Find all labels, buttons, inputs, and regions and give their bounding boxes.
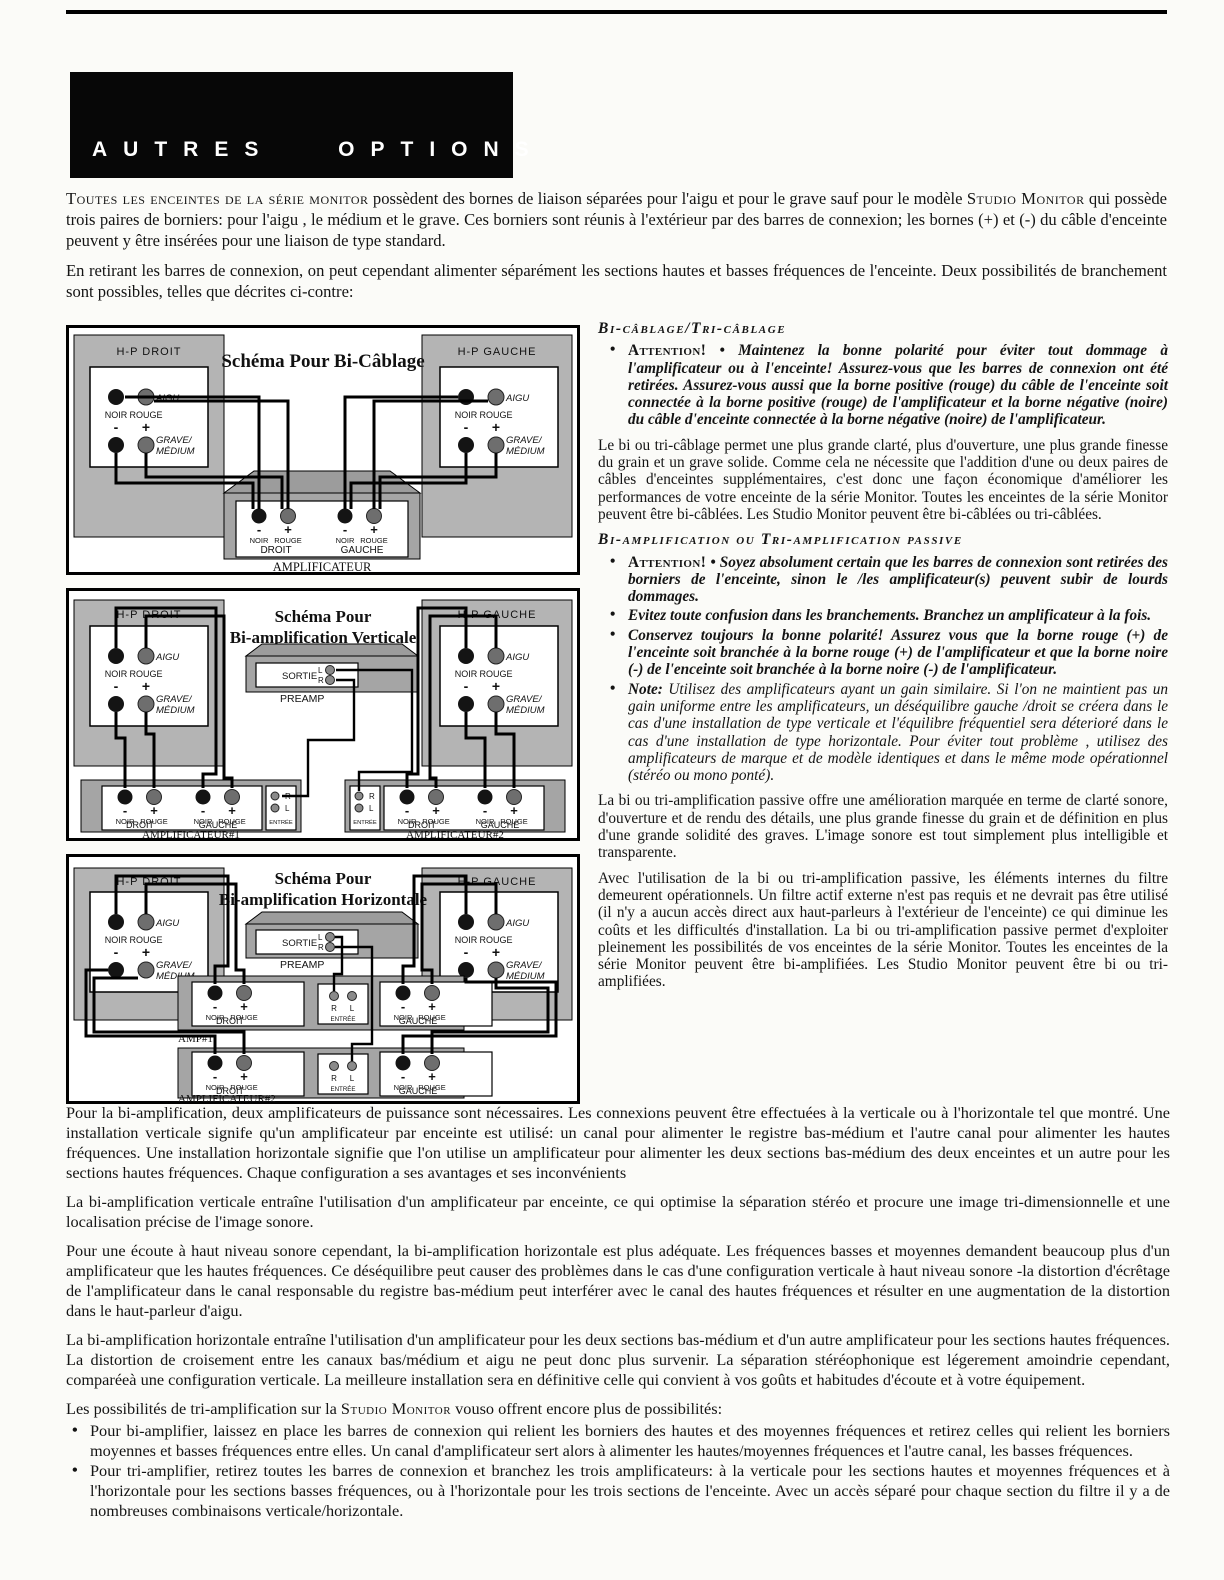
warning-list: • Attention! • Maintenez la bonne polari… — [598, 342, 1168, 428]
section-banner: AUTRES OPTIONS — [70, 72, 513, 178]
bottom-section: Pour la bi-amplification, deux amplifica… — [66, 1103, 1170, 1521]
bullet-icon: • — [610, 680, 615, 697]
gauche-label: GAUCHE — [341, 545, 384, 556]
amplificateur2-label: AMPLIFICATEUR#2 — [406, 829, 504, 841]
bullet-separator: • — [706, 342, 738, 359]
body-paragraph: La bi-amplification horizontale entraîne… — [66, 1330, 1170, 1390]
bullet-icon: • — [72, 1420, 78, 1440]
l-label: L — [350, 1074, 355, 1083]
amp2-input-jack-l — [348, 1062, 357, 1071]
attention-label: Attention! — [628, 342, 706, 359]
sortie-label: SORTIE — [282, 938, 317, 949]
entree-label: ENTRÉE — [330, 1016, 355, 1023]
body-paragraph: Avec l'utilisation de la bi ou tri-ampli… — [598, 870, 1168, 991]
droit-label: DROIT — [260, 545, 291, 556]
list-item: • Pour tri-amplifier, retirez toutes les… — [66, 1461, 1170, 1521]
list-item: • Attention! • Soyez absolument certain … — [598, 554, 1168, 606]
tri-amp-intro: Les possibilités de tri-amplification su… — [66, 1399, 1170, 1419]
amp2-input-jack-r — [330, 1062, 339, 1071]
body-paragraph: Le bi ou tri-câblage permet une plus gra… — [598, 437, 1168, 523]
preamp-top-face — [246, 912, 418, 924]
amp2-input-block — [350, 786, 380, 830]
bullet-icon: • — [610, 341, 615, 358]
list-item-text: Pour tri-amplifier, retirez toutes les b… — [90, 1461, 1170, 1520]
document-page: AUTRES OPTIONS Toutes les enceintes de l… — [0, 0, 1224, 1580]
warning-list: • Attention! • Soyez absolument certain … — [598, 554, 1168, 785]
diagram-biamp-verticale: H-P DROIT H-P GAUCHE Schéma Pour Bi-ampl… — [66, 588, 580, 841]
hp-gauche-label: H-P GAUCHE — [458, 346, 537, 358]
diagram-biamp-horizontale: H-P DROIT H-P GAUCHE Schéma Pour Bi-ampl… — [66, 854, 580, 1104]
droit-label: DROIT — [216, 1016, 245, 1026]
text-run: possèdent des bornes de liaison séparées… — [369, 189, 967, 208]
text-run-smallcaps: Toutes les enceintes de la série monitor — [66, 189, 369, 208]
bullet-icon: • — [610, 606, 615, 623]
list-item-text: Pour bi-amplifier, laissez en place les … — [90, 1421, 1170, 1460]
note-text: Utilisez des amplificateurs ayant un gai… — [628, 681, 1168, 784]
sortie-label: SORTIE — [282, 671, 317, 682]
list-item: • Conservez toujours la bonne polarité! … — [598, 627, 1168, 679]
body-paragraph: Pour une écoute à haut niveau sonore cep… — [66, 1241, 1170, 1321]
intro-paragraph-2: En retirant les barres de connexion, on … — [66, 260, 1167, 302]
diagram-title-line1: Schéma Pour — [275, 607, 372, 626]
gauche-label: GAUCHE — [399, 1016, 438, 1026]
page-title: AUTRES OPTIONS — [92, 138, 545, 162]
hp-droit-label: H-P DROIT — [116, 876, 181, 888]
preamp-jack-r — [326, 943, 335, 952]
preamp-jack-l — [326, 666, 335, 675]
amplificateur1-label: AMPLIFICATEUR#1 — [142, 829, 240, 841]
section-heading-biamplification: Bi-amplification ou Tri-amplification pa… — [598, 531, 1168, 548]
top-rule — [66, 10, 1167, 14]
note-label: Note: — [628, 681, 663, 698]
list-item: • Evitez toute confusion dans les branch… — [598, 607, 1168, 624]
bullet-icon: • — [610, 553, 615, 570]
gauche-label: GAUCHE — [399, 1086, 438, 1096]
attention-label: Attention! — [628, 554, 706, 571]
text-run-smallcaps: Studio Monitor — [967, 189, 1085, 208]
body-paragraph: Pour la bi-amplification, deux amplifica… — [66, 1103, 1170, 1183]
preamp-label: PREAMP — [280, 959, 324, 971]
bullet-icon: • — [72, 1460, 78, 1480]
speaker-terminals — [90, 367, 208, 467]
preamp-top-face — [246, 644, 418, 656]
r-label: R — [331, 1004, 337, 1013]
preamp-jack-r — [326, 676, 335, 685]
hp-droit-label: H-P DROIT — [116, 346, 181, 358]
text-run-smallcaps: Studio Monitor — [341, 1399, 451, 1418]
list-item: • Attention! • Maintenez la bonne polari… — [598, 342, 1168, 428]
r-label: R — [331, 1074, 337, 1083]
list-item: • Pour bi-amplifier, laissez en place le… — [66, 1421, 1170, 1461]
bullet-icon: • — [610, 626, 615, 643]
diagram-bi-cablage: AIGU NOIR ROUGE - + GRAVE/ MÉDIUM - + NO… — [66, 325, 580, 575]
warning-text: Evitez toute confusion dans les branchem… — [628, 607, 1151, 624]
text-column: Bi-câblage/Tri-câblage • Attention! • Ma… — [598, 320, 1168, 999]
intro-paragraph-1: Toutes les enceintes de la série monitor… — [66, 188, 1167, 251]
amp1-input-jack-r — [330, 992, 339, 1001]
diagram-title-line1: Schéma Pour — [275, 869, 372, 888]
speaker-terminals — [440, 367, 558, 467]
preamp-label: PREAMP — [280, 693, 324, 705]
text-run: Les possibilités de tri-amplification su… — [66, 1399, 341, 1418]
diagram-title: Schéma Pour Bi-Câblage — [221, 351, 424, 372]
speaker-terminals — [90, 626, 208, 726]
list-item: • Note: Utilisez des amplificateurs ayan… — [598, 681, 1168, 785]
r-label: R — [318, 676, 324, 685]
l-label: L — [318, 933, 323, 942]
bullet-separator: • — [706, 554, 720, 571]
speaker-terminals — [440, 626, 558, 726]
amp1-input-jack-l — [348, 992, 357, 1001]
warning-text: Conservez toujours la bonne polarité! As… — [628, 627, 1168, 679]
r-label: R — [318, 943, 324, 952]
body-paragraph: La bi ou tri-amplification passive offre… — [598, 792, 1168, 861]
section-heading-bicablage: Bi-câblage/Tri-câblage — [598, 320, 1168, 337]
amplificateur-label: AMPLIFICATEUR — [273, 560, 372, 574]
l-label: L — [350, 1004, 355, 1013]
diagram-column: AIGU NOIR ROUGE - + GRAVE/ MÉDIUM - + NO… — [66, 325, 580, 1117]
text-run: vouso offrent encore plus de possibilité… — [451, 1399, 722, 1418]
diagram-title-line2: Bi-amplification Horizontale — [219, 890, 428, 909]
amp1-input-block — [266, 786, 296, 830]
preamp-jack-l — [326, 933, 335, 942]
intro-block: Toutes les enceintes de la série monitor… — [66, 188, 1167, 311]
body-paragraph: La bi-amplification verticale entraîne l… — [66, 1192, 1170, 1232]
l-label: L — [318, 666, 323, 675]
entree-label: ENTRÉE — [330, 1086, 355, 1093]
